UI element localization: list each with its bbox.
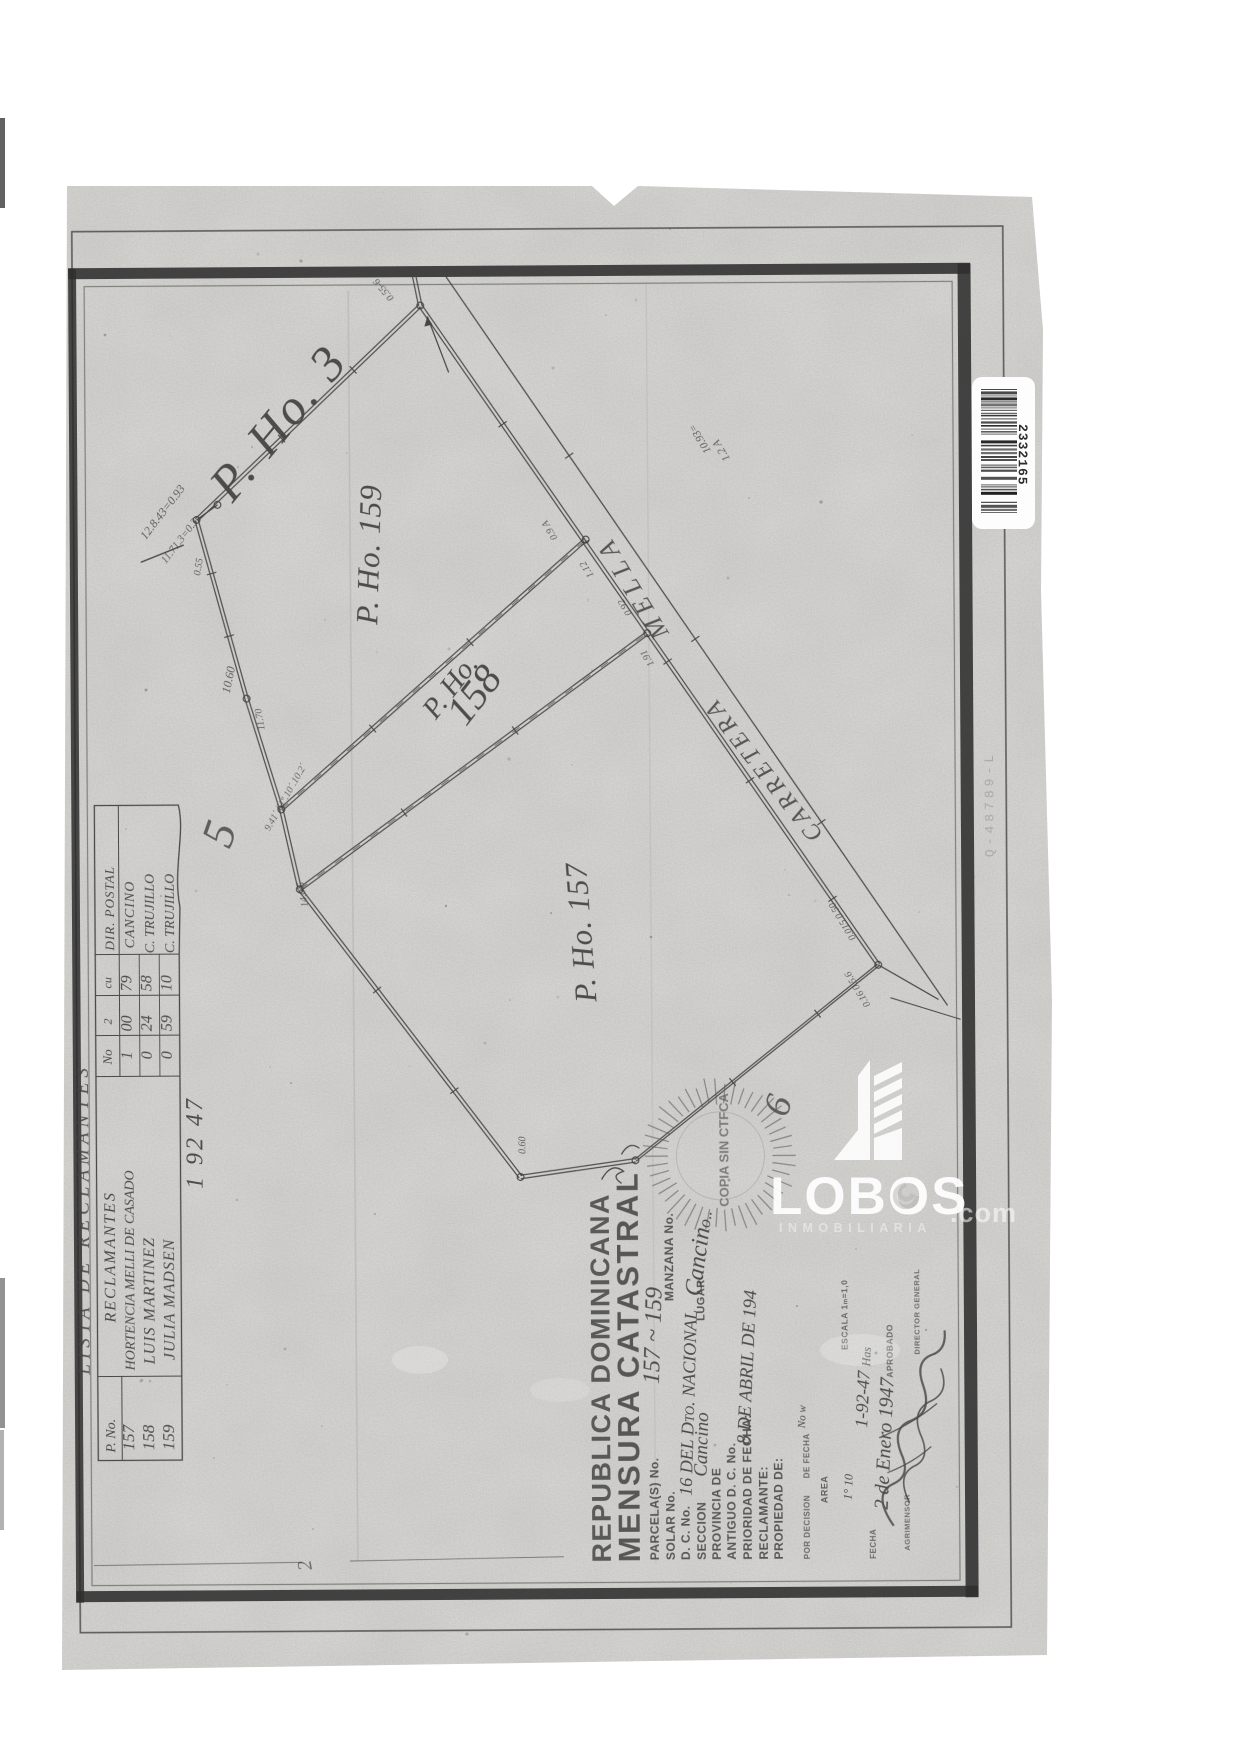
svg-text:DIR. POSTAL: DIR. POSTAL [102,866,118,952]
svg-text:LOBOS: LOBOS [770,1167,968,1226]
svg-text:DIRECTOR GENERAL: DIRECTOR GENERAL [912,1269,922,1355]
svg-text:58: 58 [138,975,155,991]
svg-text:POR DECISION: POR DECISION [803,1495,812,1559]
svg-text:FECHA: FECHA [869,1529,878,1559]
svg-text:1: 1 [119,1051,136,1059]
svg-text:LISTA DE RECLAMANTES: LISTA DE RECLAMANTES [72,1063,95,1376]
svg-text:CANCINO: CANCINO [123,881,138,949]
svg-text:159: 159 [159,1424,178,1450]
svg-text:JULIA MADSEN: JULIA MADSEN [161,1238,179,1360]
svg-text:No: No [100,1049,115,1066]
svg-text:PROPIEDAD DE:: PROPIEDAD DE: [771,1458,786,1560]
svg-text:1° 10: 1° 10 [841,1474,856,1500]
svg-text:59: 59 [159,1015,176,1031]
svg-text:79: 79 [118,975,135,991]
svg-text:P. Ho. 159: P. Ho. 159 [349,484,388,626]
svg-text:ANTIGUO D. C. No.: ANTIGUO D. C. No. [724,1443,739,1560]
svg-text:cu: cu [100,977,114,988]
svg-text:No w: No w [796,1404,809,1429]
svg-text:P. No.: P. No. [104,1419,119,1454]
svg-text:AREA: AREA [819,1476,829,1504]
svg-text:24: 24 [139,1015,156,1031]
svg-text:157: 157 [119,1423,138,1450]
svg-text:1 92 47: 1 92 47 [182,1096,209,1189]
svg-text:LUIS MARTINEZ: LUIS MARTINEZ [141,1237,159,1365]
svg-text:HORTENCIA MELLI DE CASADO: HORTENCIA MELLI DE CASADO [123,1170,139,1371]
svg-text:SOLAR No.: SOLAR No. [663,1491,677,1560]
svg-text:C. TRUJILLO: C. TRUJILLO [143,874,158,953]
svg-text:D. C. No.: D. C. No. [679,1505,693,1560]
svg-text:MANZANA No.: MANZANA No. [662,1213,677,1301]
svg-text:INMOBILIARIA: INMOBILIARIA [779,1221,932,1235]
svg-text:00: 00 [119,1015,136,1031]
svg-text:2: 2 [101,1018,115,1024]
svg-text:RECLAMANTES: RECLAMANTES [102,1191,120,1323]
svg-text:COPIA SIN CTFCA: COPIA SIN CTFCA [716,1092,732,1206]
svg-text:0.60: 0.60 [517,1136,528,1154]
svg-text:PROVINCIA DE: PROVINCIA DE [709,1468,724,1560]
svg-text:2332165: 2332165 [1015,424,1030,486]
svg-text:0: 0 [159,1051,176,1059]
svg-text:.com: .com [950,1198,1017,1228]
svg-text:SECCION: SECCION [695,1502,709,1560]
svg-text:0: 0 [139,1051,156,1059]
svg-text:C. TRUJILLO: C. TRUJILLO [163,874,178,953]
svg-text:PARCELA(S) No.: PARCELA(S) No. [647,1457,662,1560]
svg-text:RECLAMANTE:: RECLAMANTE: [756,1466,771,1560]
svg-text:158: 158 [139,1424,158,1450]
svg-text:Cancino: Cancino [690,1412,713,1477]
svg-text:10: 10 [158,975,175,991]
svg-text:DE FECHA: DE FECHA [802,1433,811,1478]
svg-text:Q-48789-L: Q-48789-L [982,751,998,857]
svg-text:AGRIMENSOR: AGRIMENSOR [903,1494,912,1551]
